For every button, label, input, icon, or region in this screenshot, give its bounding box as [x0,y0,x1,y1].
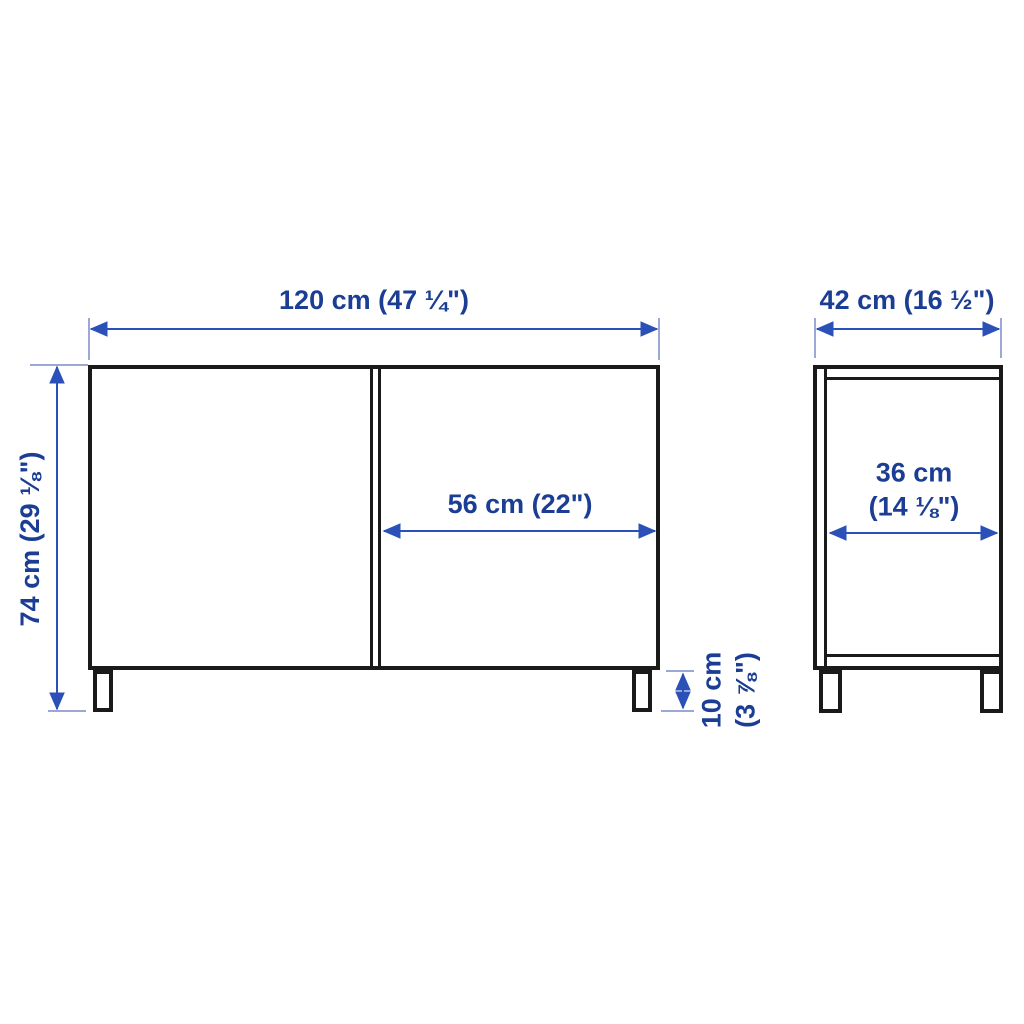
depth-dimension-label: 42 cm (16 ½") [820,284,995,318]
leg-height-dimension-label: 10 cm (3 ⅞") [695,652,763,729]
side-right-leg [982,672,1001,711]
inner-depth-label-line2: (14 ⅛") [869,490,960,524]
front-right-leg [634,672,650,710]
dimension-diagram: 120 cm (47 ¼") 74 cm (29 ⅛") 56 cm (22")… [0,0,1024,1024]
width-dimension-label: 120 cm (47 ¼") [279,284,469,318]
front-left-leg [95,672,111,710]
leg-height-label-line2: (3 ⅞") [729,652,763,729]
depth-dimension-arrow [815,318,1001,358]
leg-height-label-line1: 10 cm [695,652,729,729]
door-width-dimension-label: 56 cm (22") [448,488,593,522]
width-dimension-arrow [89,318,659,360]
leg-height-dimension-arrow [661,671,694,711]
height-dimension-label: 74 cm (29 ⅛") [14,452,48,627]
side-view-cabinet [815,366,1001,711]
inner-depth-dimension-label: 36 cm (14 ⅛") [869,456,960,524]
front-view-cabinet [90,366,658,710]
side-left-leg [821,672,840,711]
inner-depth-label-line1: 36 cm [869,456,960,490]
